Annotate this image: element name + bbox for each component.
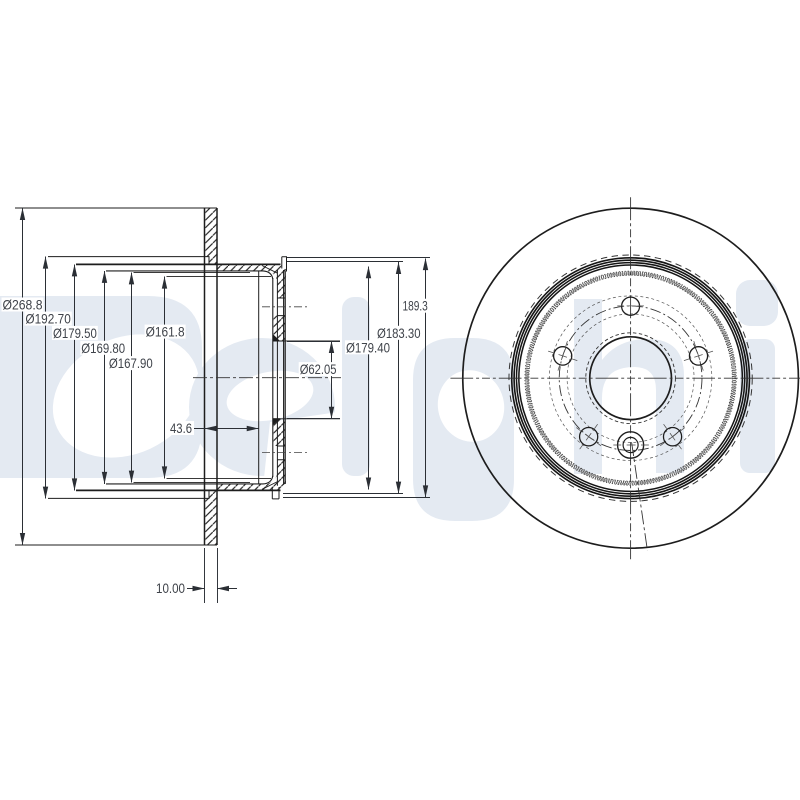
svg-text:43.6: 43.6 <box>170 421 192 436</box>
svg-text:Ø169.80: Ø169.80 <box>81 341 125 356</box>
svg-text:Ø192.70: Ø192.70 <box>25 312 71 327</box>
svg-text:Ø167.90: Ø167.90 <box>109 356 153 371</box>
svg-text:Ø179.40: Ø179.40 <box>346 340 390 355</box>
svg-text:10.00: 10.00 <box>156 581 185 596</box>
svg-text:Ø183.30: Ø183.30 <box>377 326 421 341</box>
svg-text:189.3: 189.3 <box>403 299 429 314</box>
svg-text:Ø179.50: Ø179.50 <box>53 326 97 341</box>
svg-text:Ø62.05: Ø62.05 <box>300 362 337 377</box>
svg-text:Ø268.8: Ø268.8 <box>3 298 43 313</box>
svg-text:Ø161.8: Ø161.8 <box>146 325 185 340</box>
